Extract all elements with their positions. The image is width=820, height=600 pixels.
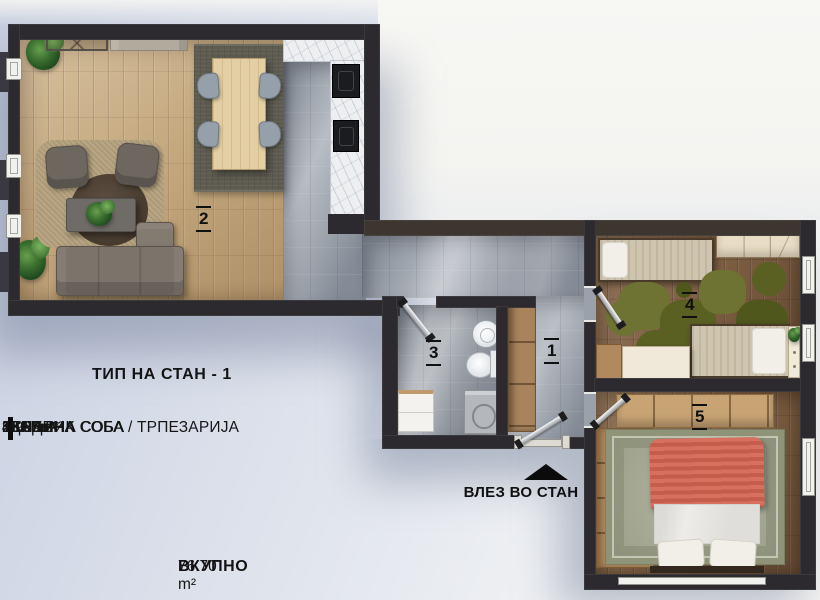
- bedroom4-desk: [622, 346, 690, 380]
- washing-machine: [464, 390, 500, 434]
- wall-top: [8, 24, 370, 40]
- background-white-area: [378, 0, 820, 220]
- window-bedroom4: [802, 256, 815, 294]
- window-bedroom5: [802, 438, 815, 496]
- wall-bathroom-top: [436, 296, 536, 308]
- room-number-bedroom4: 4: [682, 292, 697, 318]
- entrance-label: ВЛЕЗ ВО СТАН: [446, 484, 596, 501]
- room-number-bedroom5: 5: [692, 404, 707, 430]
- wall-bathroom-right: [496, 306, 508, 438]
- sofa: [56, 246, 184, 296]
- room-number-bathroom: 3: [426, 340, 441, 366]
- bedroom4-plant: [788, 328, 800, 342]
- exterior-fin: [0, 252, 8, 292]
- entrance-arrow-icon: [524, 464, 568, 480]
- bedroom5-footboard: [650, 566, 764, 573]
- kitchen-counter-end: [328, 214, 366, 234]
- room-number-living: 2: [196, 206, 211, 232]
- bedroom4-duvet: [752, 328, 786, 374]
- wall-bedroom-separator: [594, 378, 802, 392]
- bedroom5-pillow: [657, 538, 705, 569]
- armchair: [114, 142, 161, 189]
- row-area: 13.95m²: [2, 419, 59, 437]
- wall-living-right: [364, 24, 380, 224]
- kitchen-sink-unit: [332, 64, 360, 98]
- corridor-floor: [362, 234, 596, 298]
- room-list-row: 5 СПАЛНА СОБА 13.95m²: [2, 414, 334, 442]
- bedroom4-side-table: [596, 344, 622, 380]
- wall-bathroom-left: [382, 296, 398, 448]
- bedroom5-pillow: [709, 538, 757, 569]
- window-bedroom5-bottom: [618, 577, 766, 585]
- window-living-left: [6, 154, 22, 178]
- dining-chair: [196, 120, 219, 147]
- kitchen-cooktop: [333, 120, 359, 152]
- background-top-strip: [0, 0, 378, 26]
- total-area: 76.70 m²: [178, 558, 217, 594]
- entrance-threshold-right: [562, 435, 570, 449]
- plan-title: ТИП НА СТАН - 1: [92, 366, 232, 384]
- window-bedroom4: [802, 324, 815, 362]
- coffee-table-plant: [86, 202, 112, 226]
- armchair: [45, 145, 90, 190]
- bathroom-cabinet: [398, 390, 434, 432]
- wall-bathroom-bottom: [382, 435, 516, 449]
- wall-living-bottom: [8, 300, 400, 316]
- room-number-hallway: 1: [544, 338, 559, 364]
- window-living-left: [6, 214, 22, 238]
- bedroom4-pillow: [602, 242, 628, 278]
- dining-table: [212, 58, 266, 170]
- bedroom5-sheet: [654, 504, 760, 544]
- puzzle-rug-piece: [752, 262, 786, 296]
- bedroom5-red-blanket: [649, 437, 764, 509]
- window-living-left: [6, 58, 22, 80]
- hallway-wardrobe: [508, 300, 536, 432]
- floor-plan-canvas: 2 3 1 4 5 ВЛЕЗ ВО СТАН ТИП НА СТАН - 1 1…: [0, 0, 820, 600]
